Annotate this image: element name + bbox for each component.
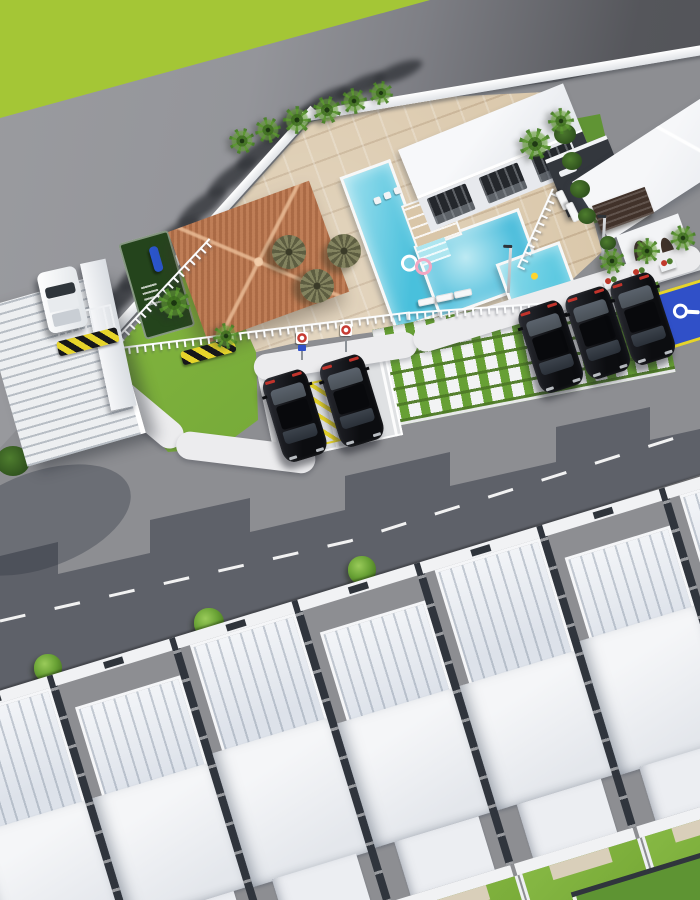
parking-sign bbox=[340, 324, 352, 354]
bush bbox=[578, 208, 596, 224]
parking-sign bbox=[296, 332, 308, 362]
palm bbox=[229, 128, 255, 154]
bush bbox=[562, 152, 582, 170]
accessible-sign-icon bbox=[298, 345, 306, 351]
no-parking-sign-icon bbox=[340, 324, 352, 336]
palm bbox=[313, 96, 341, 124]
bush bbox=[570, 180, 590, 198]
aerial-community-render: Aerial 3D architectural rendering of a g… bbox=[0, 0, 700, 900]
playground-slide bbox=[148, 245, 164, 272]
palm bbox=[599, 248, 625, 274]
no-parking-sign-icon bbox=[296, 332, 308, 344]
palm bbox=[158, 287, 190, 319]
palm bbox=[519, 128, 551, 160]
sign-pole bbox=[345, 334, 347, 352]
